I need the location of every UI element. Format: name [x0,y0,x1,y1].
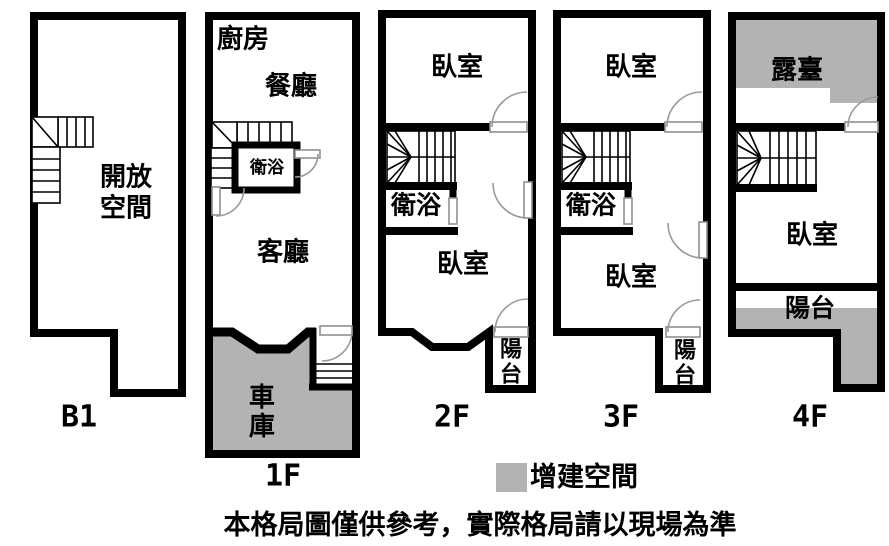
legend-added-space-label: 增建空間 [530,462,638,494]
f4-stairs [737,131,816,185]
room-label-balcony-2f: 陽台 [496,337,522,387]
room-label-bedroom-3f-top: 臥室 [605,52,657,83]
floor-label-b1: B1 [61,399,97,434]
room-label-bedroom-3f-bottom: 臥室 [605,262,657,293]
legend-added-space-swatch [496,463,527,492]
room-label-bath-3f: 衛浴 [566,191,616,221]
room-label-balcony-4f: 陽台 [785,294,835,324]
room-label-bedroom-2f-top: 臥室 [431,52,483,83]
floor-label-1f: 1F [265,458,301,493]
room-label-terrace: 露臺 [771,55,823,86]
floor-plan-figure: 開放空間 B1 廚房 餐廳 衛浴 客廳 車庫 1F 臥室 衛浴 臥室 陽台 2F… [0,0,889,546]
room-label-bath-1f: 衛浴 [250,158,284,178]
f2-stairs [387,131,455,183]
room-label-bedroom-4f: 臥室 [786,220,838,251]
room-label-living: 客廳 [257,237,309,268]
room-label-bedroom-2f-bottom: 臥室 [437,249,489,280]
floor-label-3f: 3F [603,399,639,434]
room-label-balcony-3f: 陽台 [670,338,696,388]
disclaimer-text: 本格局圖僅供參考，實際格局請以現場為準 [224,510,737,542]
room-label-dining: 餐廳 [265,71,317,102]
room-label-kitchen: 廚房 [217,24,269,55]
room-label-garage: 車庫 [245,383,276,441]
floor-label-2f: 2F [434,399,470,434]
f3-bathroom-door [624,198,632,224]
floor-label-4f: 4F [792,399,828,434]
f3-stairs [562,131,630,183]
room-label-bath-2f: 衛浴 [391,191,441,221]
room-label-open-space: 開放空間 [96,161,156,222]
f2-bathroom-door [449,198,457,224]
